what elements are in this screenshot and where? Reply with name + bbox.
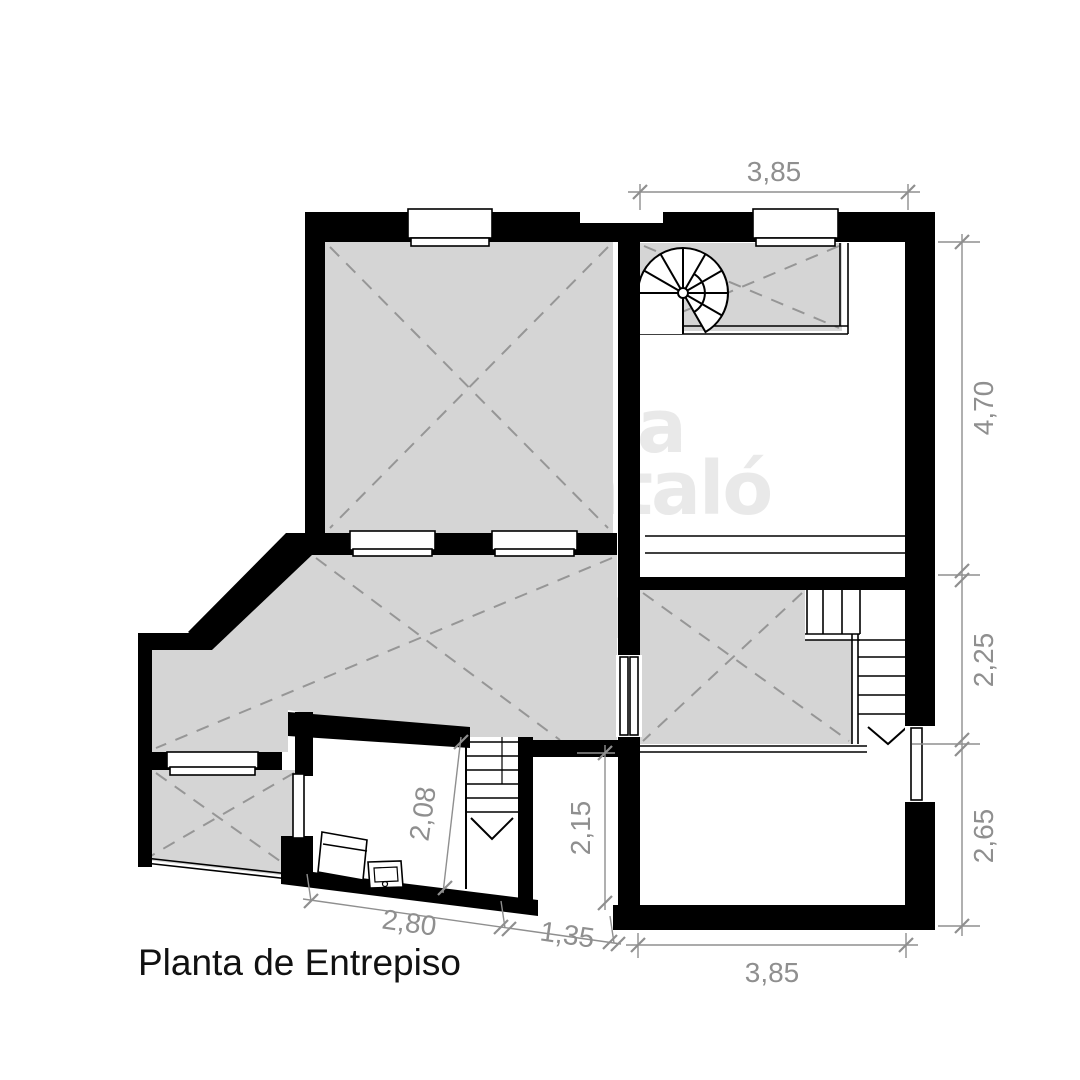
window bbox=[350, 531, 435, 556]
plan-title: Planta de Entrepiso bbox=[138, 942, 461, 983]
window bbox=[492, 531, 577, 556]
dim-right-lower: 2,65 bbox=[968, 809, 999, 864]
window bbox=[408, 209, 492, 246]
floor-plan-drawing: alicia santaló + equipo. bbox=[0, 0, 1080, 1080]
dim-bottom-left-width: 2,80 bbox=[380, 903, 438, 941]
dim-bottom-mid-width: 1,35 bbox=[538, 915, 596, 953]
window bbox=[167, 752, 258, 775]
dim-top-width: 3,85 bbox=[747, 156, 802, 187]
window bbox=[616, 655, 642, 737]
bottom-staircase bbox=[466, 737, 518, 889]
window bbox=[905, 726, 935, 802]
dim-right-upper: 4,70 bbox=[968, 381, 999, 436]
spiral-staircase bbox=[638, 248, 728, 334]
floor-plan-page: alicia santaló + equipo. bbox=[0, 0, 1080, 1080]
dim-right-mid: 2,25 bbox=[968, 633, 999, 688]
dim-hall-depth: 2,15 bbox=[565, 801, 596, 856]
window bbox=[753, 209, 838, 246]
desk bbox=[318, 832, 367, 880]
dim-bottom-width: 3,85 bbox=[745, 957, 800, 988]
dim-desk-room-depth: 2,08 bbox=[403, 785, 441, 843]
door-leaf bbox=[293, 774, 304, 838]
